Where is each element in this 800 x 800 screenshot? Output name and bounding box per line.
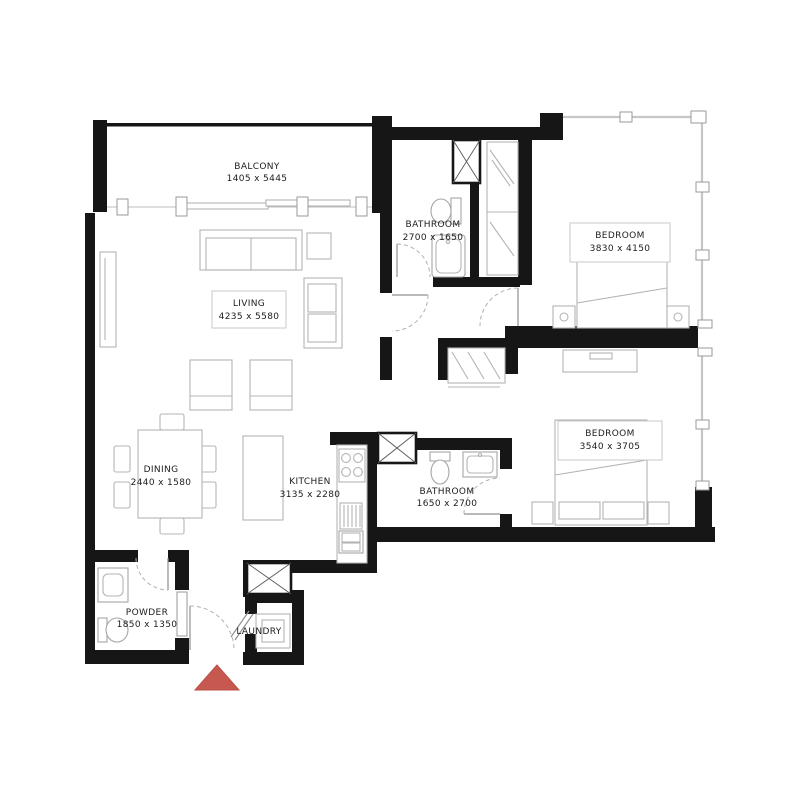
dining-chair xyxy=(160,518,184,534)
dresser xyxy=(563,350,637,372)
room-name: DINING xyxy=(144,465,179,475)
closet xyxy=(448,348,505,387)
room-dims: 3540 x 3705 xyxy=(580,442,641,452)
room-name: BATHROOM xyxy=(420,487,475,497)
room-name: BATHROOM xyxy=(406,220,461,230)
room-label-living: LIVING 4235 x 5580 xyxy=(212,291,286,328)
room-dims: 3830 x 4150 xyxy=(590,244,651,254)
wardrobe-bedroom1 xyxy=(487,142,518,275)
sliding-panel xyxy=(186,203,268,209)
plan-background xyxy=(0,0,800,800)
window-mullion xyxy=(620,112,632,122)
window-mullion xyxy=(696,481,709,490)
sink-icon xyxy=(98,568,128,602)
window-mullion xyxy=(696,420,709,429)
dining-chair xyxy=(160,414,184,430)
dining-chair xyxy=(114,482,130,508)
door-post xyxy=(176,197,187,216)
nightstand xyxy=(532,502,553,524)
room-name: BALCONY xyxy=(234,162,280,172)
door-post xyxy=(356,197,367,216)
room-dims: 1850 x 1350 xyxy=(117,620,178,630)
accent-chair xyxy=(190,360,232,410)
kitchen-sink-icon xyxy=(339,531,363,553)
room-label-bedroom2: BEDROOM 3540 x 3705 xyxy=(558,421,662,460)
label-box xyxy=(558,421,662,460)
kitchen-island xyxy=(243,436,283,520)
room-name: BEDROOM xyxy=(585,429,634,439)
room-name: KITCHEN xyxy=(289,477,330,487)
wall-niche xyxy=(177,592,187,636)
accent-chair xyxy=(250,360,292,410)
window-mullion xyxy=(698,348,712,356)
room-name: LAUNDRY xyxy=(236,627,281,637)
sink-icon xyxy=(463,452,497,477)
nightstand xyxy=(667,306,689,328)
label-box xyxy=(212,291,286,328)
door-post xyxy=(117,199,128,215)
room-label-laundry: LAUNDRY xyxy=(236,627,281,637)
toilet-icon xyxy=(430,452,450,484)
room-dims: 2700 x 1650 xyxy=(403,233,464,243)
window-mullion xyxy=(691,111,706,123)
floor-plan: BALCONY 1405 x 5445 LIVING 4235 x 5580 D… xyxy=(0,0,800,800)
room-dims: 3135 x 2280 xyxy=(280,490,341,500)
room-name: LIVING xyxy=(233,299,265,309)
room-dims: 2440 x 1580 xyxy=(131,478,192,488)
door-post xyxy=(297,197,308,216)
label-box xyxy=(570,223,670,262)
nightstand xyxy=(648,502,669,524)
room-dims: 4235 x 5580 xyxy=(219,312,280,322)
window-mullion xyxy=(696,250,709,260)
room-label-bedroom1: BEDROOM 3830 x 4150 xyxy=(570,223,670,262)
window-mullion xyxy=(698,320,712,328)
room-dims: 1650 x 2700 xyxy=(417,499,478,509)
room-name: POWDER xyxy=(126,608,168,618)
nightstand xyxy=(553,306,575,328)
window-mullion xyxy=(696,182,709,192)
room-dims: 1405 x 5445 xyxy=(227,174,288,184)
tv-console xyxy=(100,252,116,347)
dining-chair xyxy=(114,446,130,472)
room-name: BEDROOM xyxy=(595,231,644,241)
side-table xyxy=(307,233,331,259)
